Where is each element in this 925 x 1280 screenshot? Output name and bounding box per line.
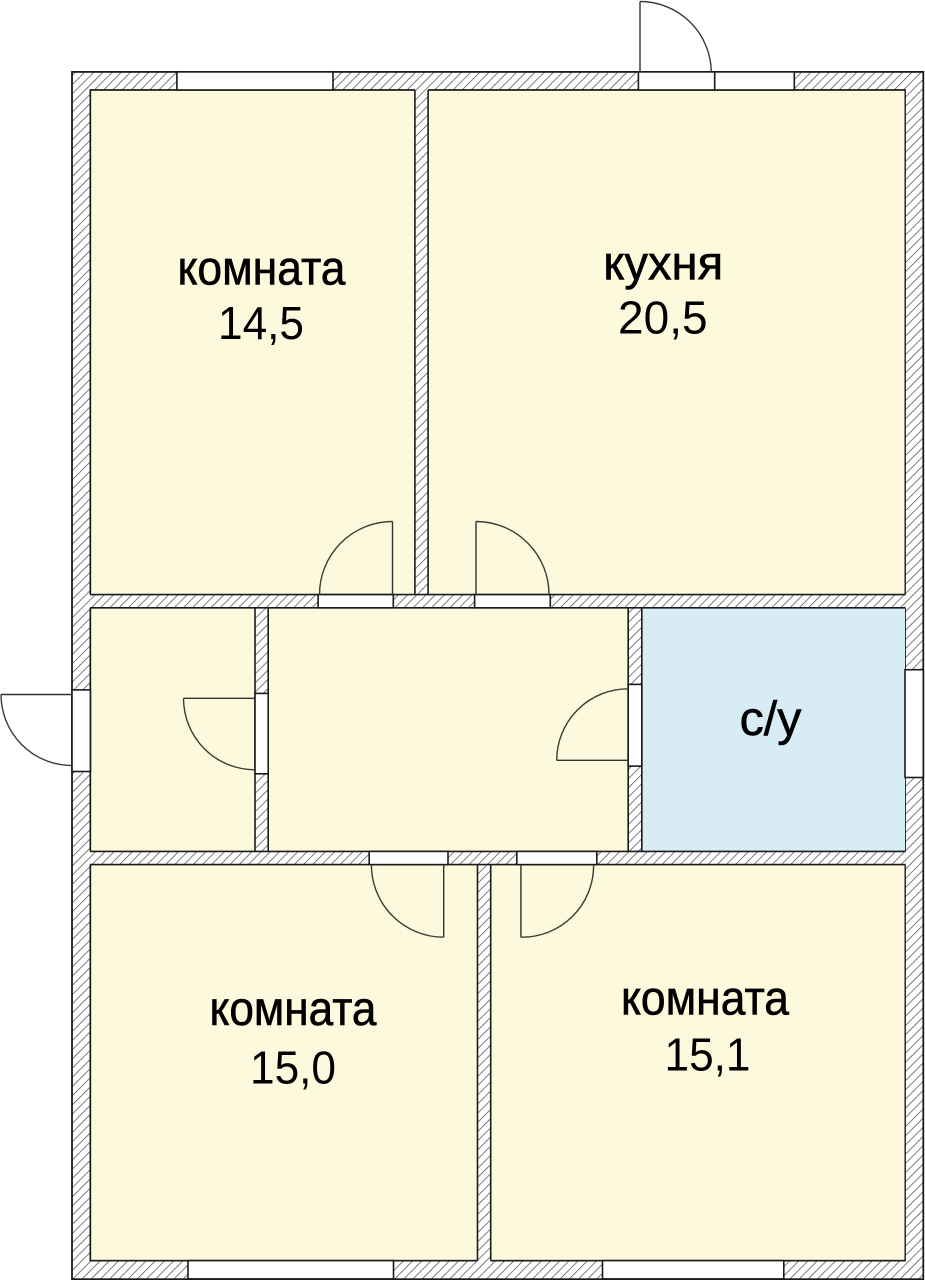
svg-text:кухня: кухня: [603, 237, 723, 290]
svg-text:20,5: 20,5: [618, 292, 708, 344]
svg-text:14,5: 14,5: [218, 297, 304, 349]
svg-text:комната: комната: [210, 983, 377, 1036]
svg-text:15,0: 15,0: [250, 1041, 336, 1093]
svg-text:с/у: с/у: [740, 693, 802, 746]
svg-text:15,1: 15,1: [665, 1029, 751, 1081]
svg-text:комната: комната: [178, 243, 346, 296]
svg-text:комната: комната: [621, 972, 789, 1025]
